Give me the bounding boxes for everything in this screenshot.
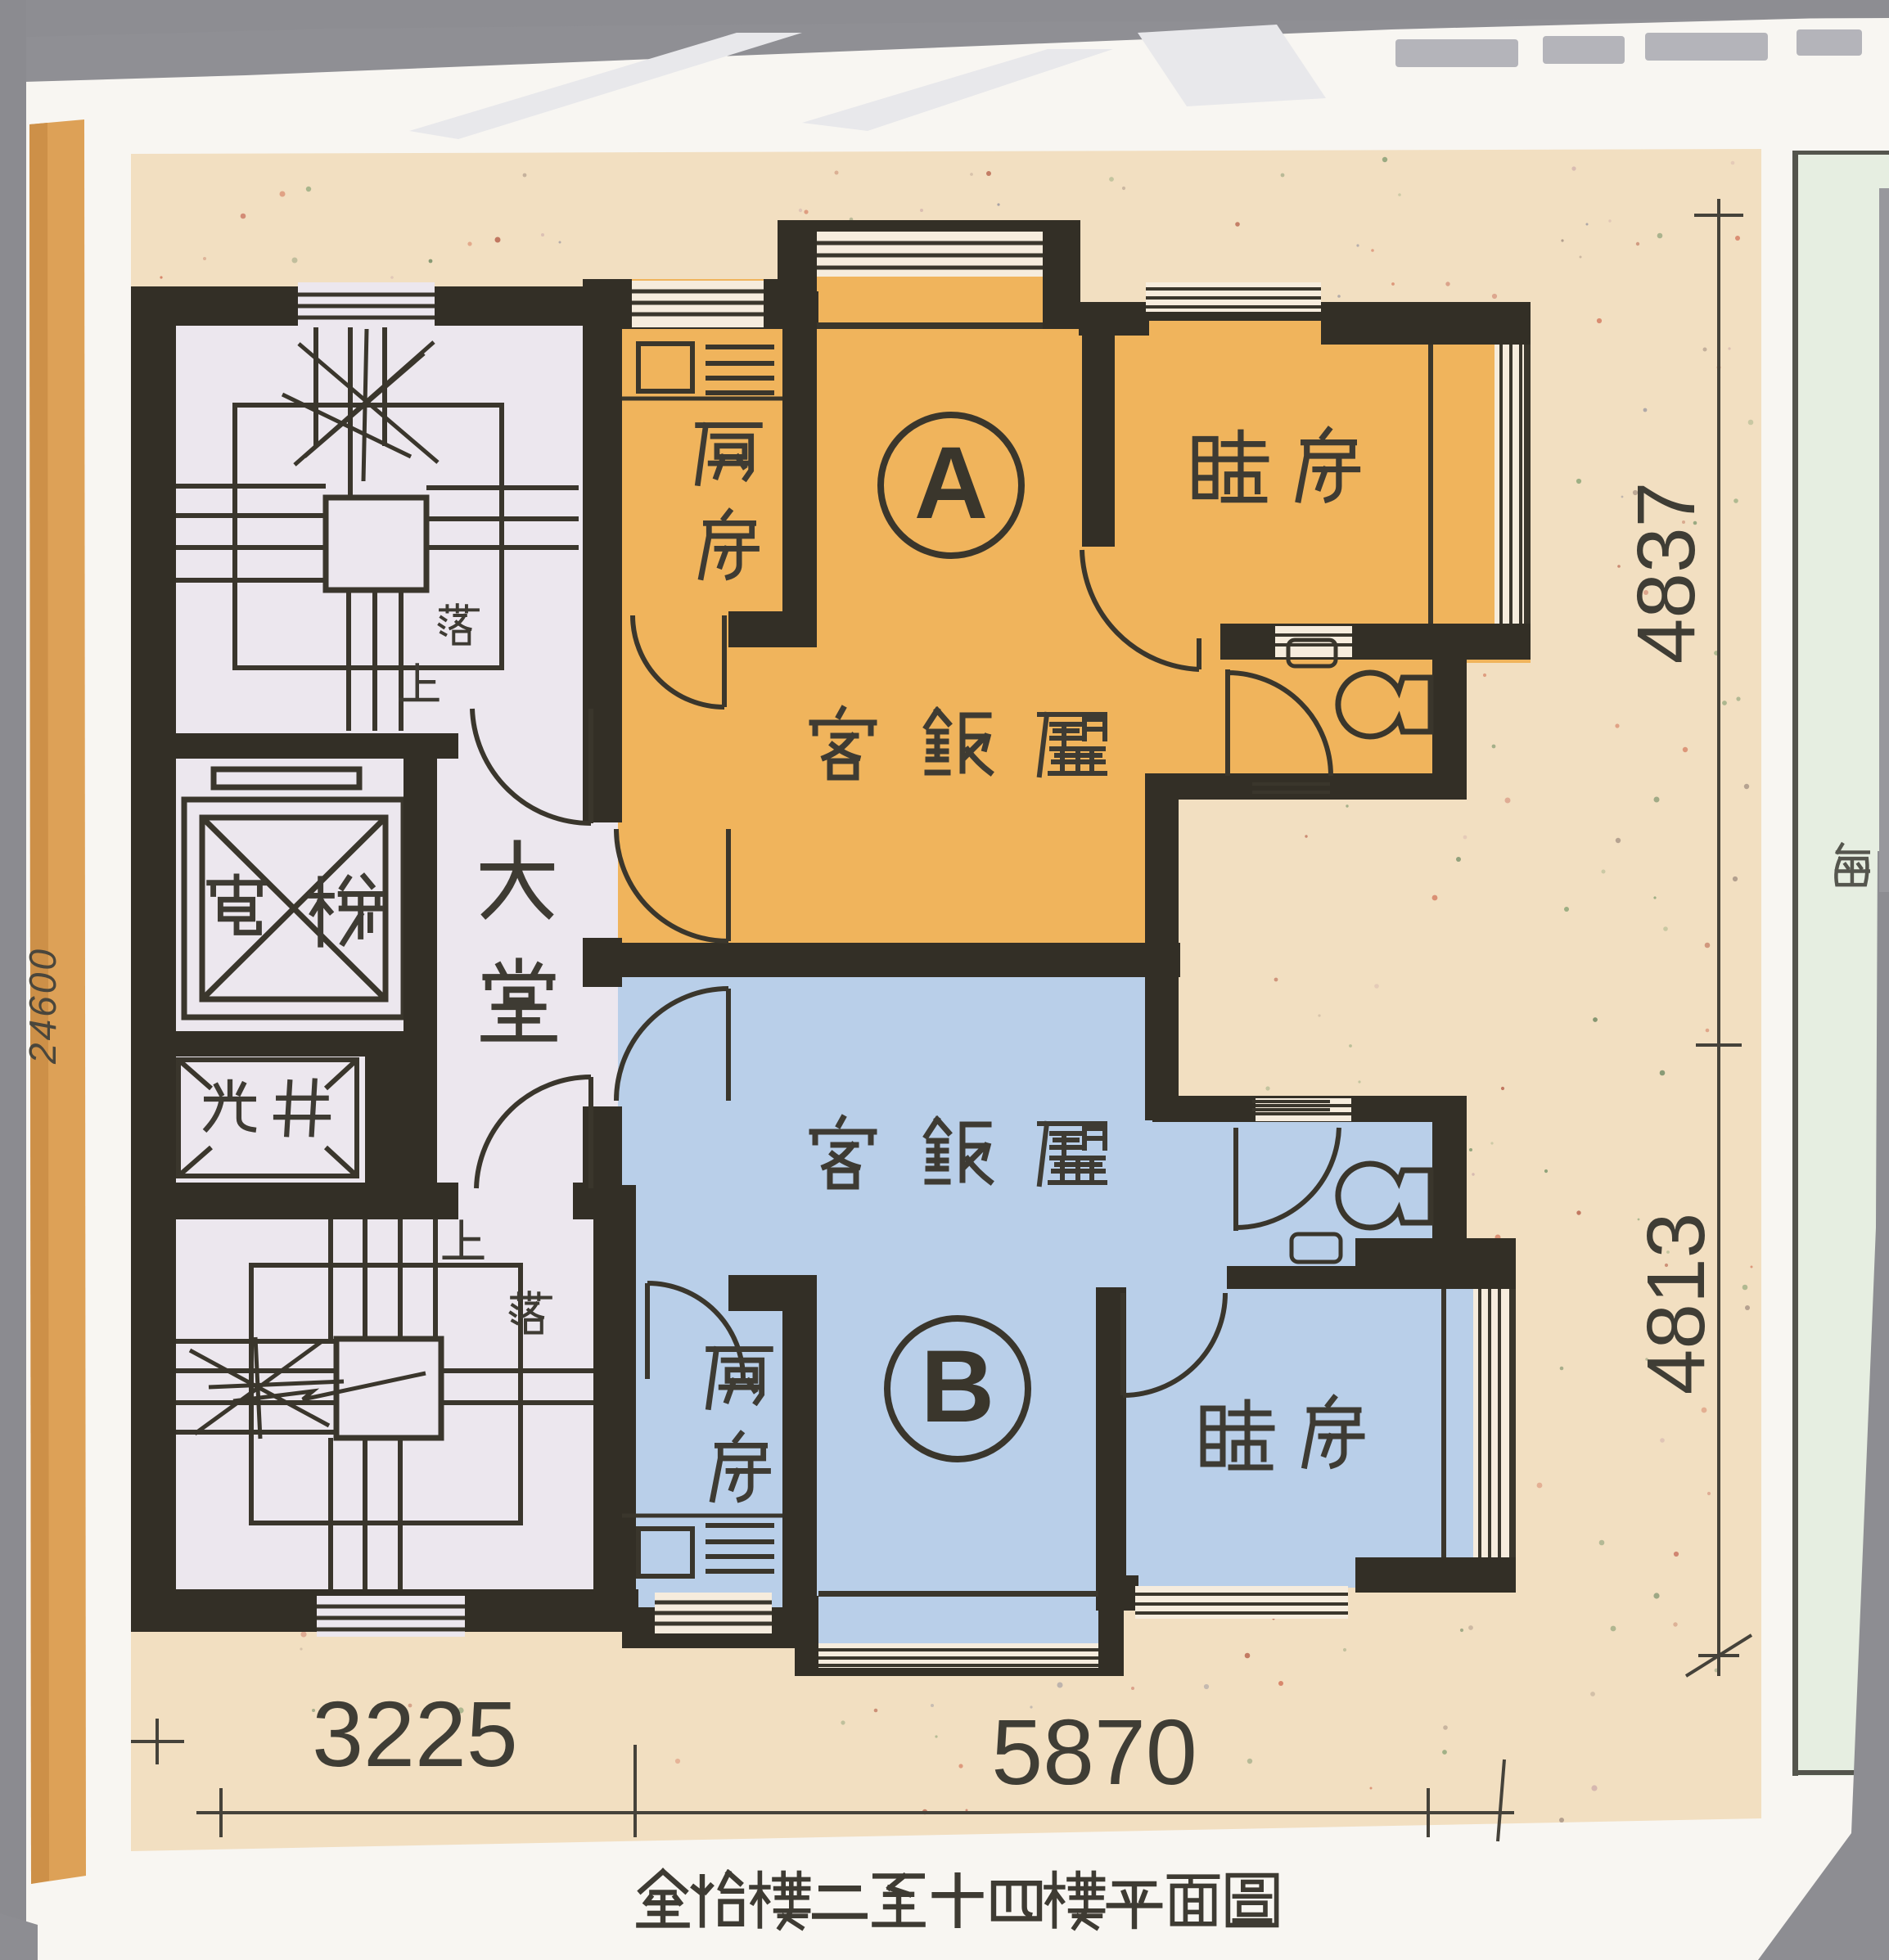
svg-text:3225: 3225 xyxy=(312,1683,517,1786)
svg-text:5870: 5870 xyxy=(991,1701,1197,1804)
svg-text:B: B xyxy=(921,1330,994,1444)
svg-text:24600: 24600 xyxy=(21,947,64,1065)
svg-text:4837: 4837 xyxy=(1621,482,1712,664)
svg-text:4813: 4813 xyxy=(1630,1213,1722,1395)
svg-text:A: A xyxy=(914,426,988,540)
